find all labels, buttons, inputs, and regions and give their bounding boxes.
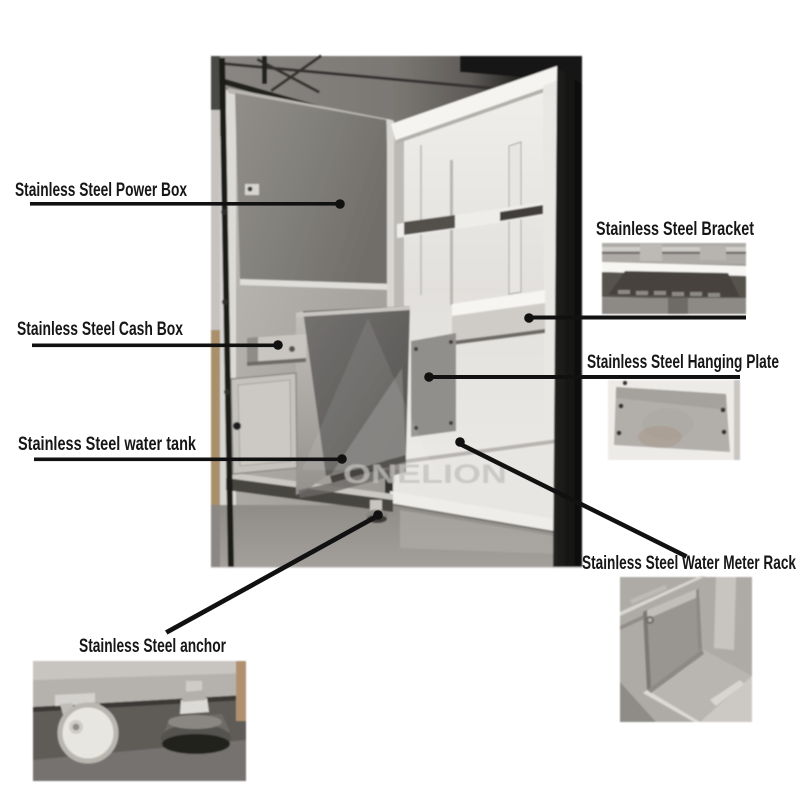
svg-text:Stainless Steel Bracket: Stainless Steel Bracket <box>596 219 754 240</box>
svg-text:Stainless Steel anchor: Stainless Steel anchor <box>79 636 226 657</box>
svg-text:Stainless Steel Power Box: Stainless Steel Power Box <box>15 180 187 201</box>
svg-text:Stainless Steel Hanging Plate: Stainless Steel Hanging Plate <box>587 352 779 373</box>
svg-text:Stainless Steel water tank: Stainless Steel water tank <box>18 434 196 455</box>
svg-text:Stainless Steel Cash Box: Stainless Steel Cash Box <box>17 319 183 340</box>
svg-text:ONELION: ONELION <box>343 459 507 489</box>
svg-text:Stainless Steel Water Meter Ra: Stainless Steel Water Meter Rack <box>582 553 796 574</box>
